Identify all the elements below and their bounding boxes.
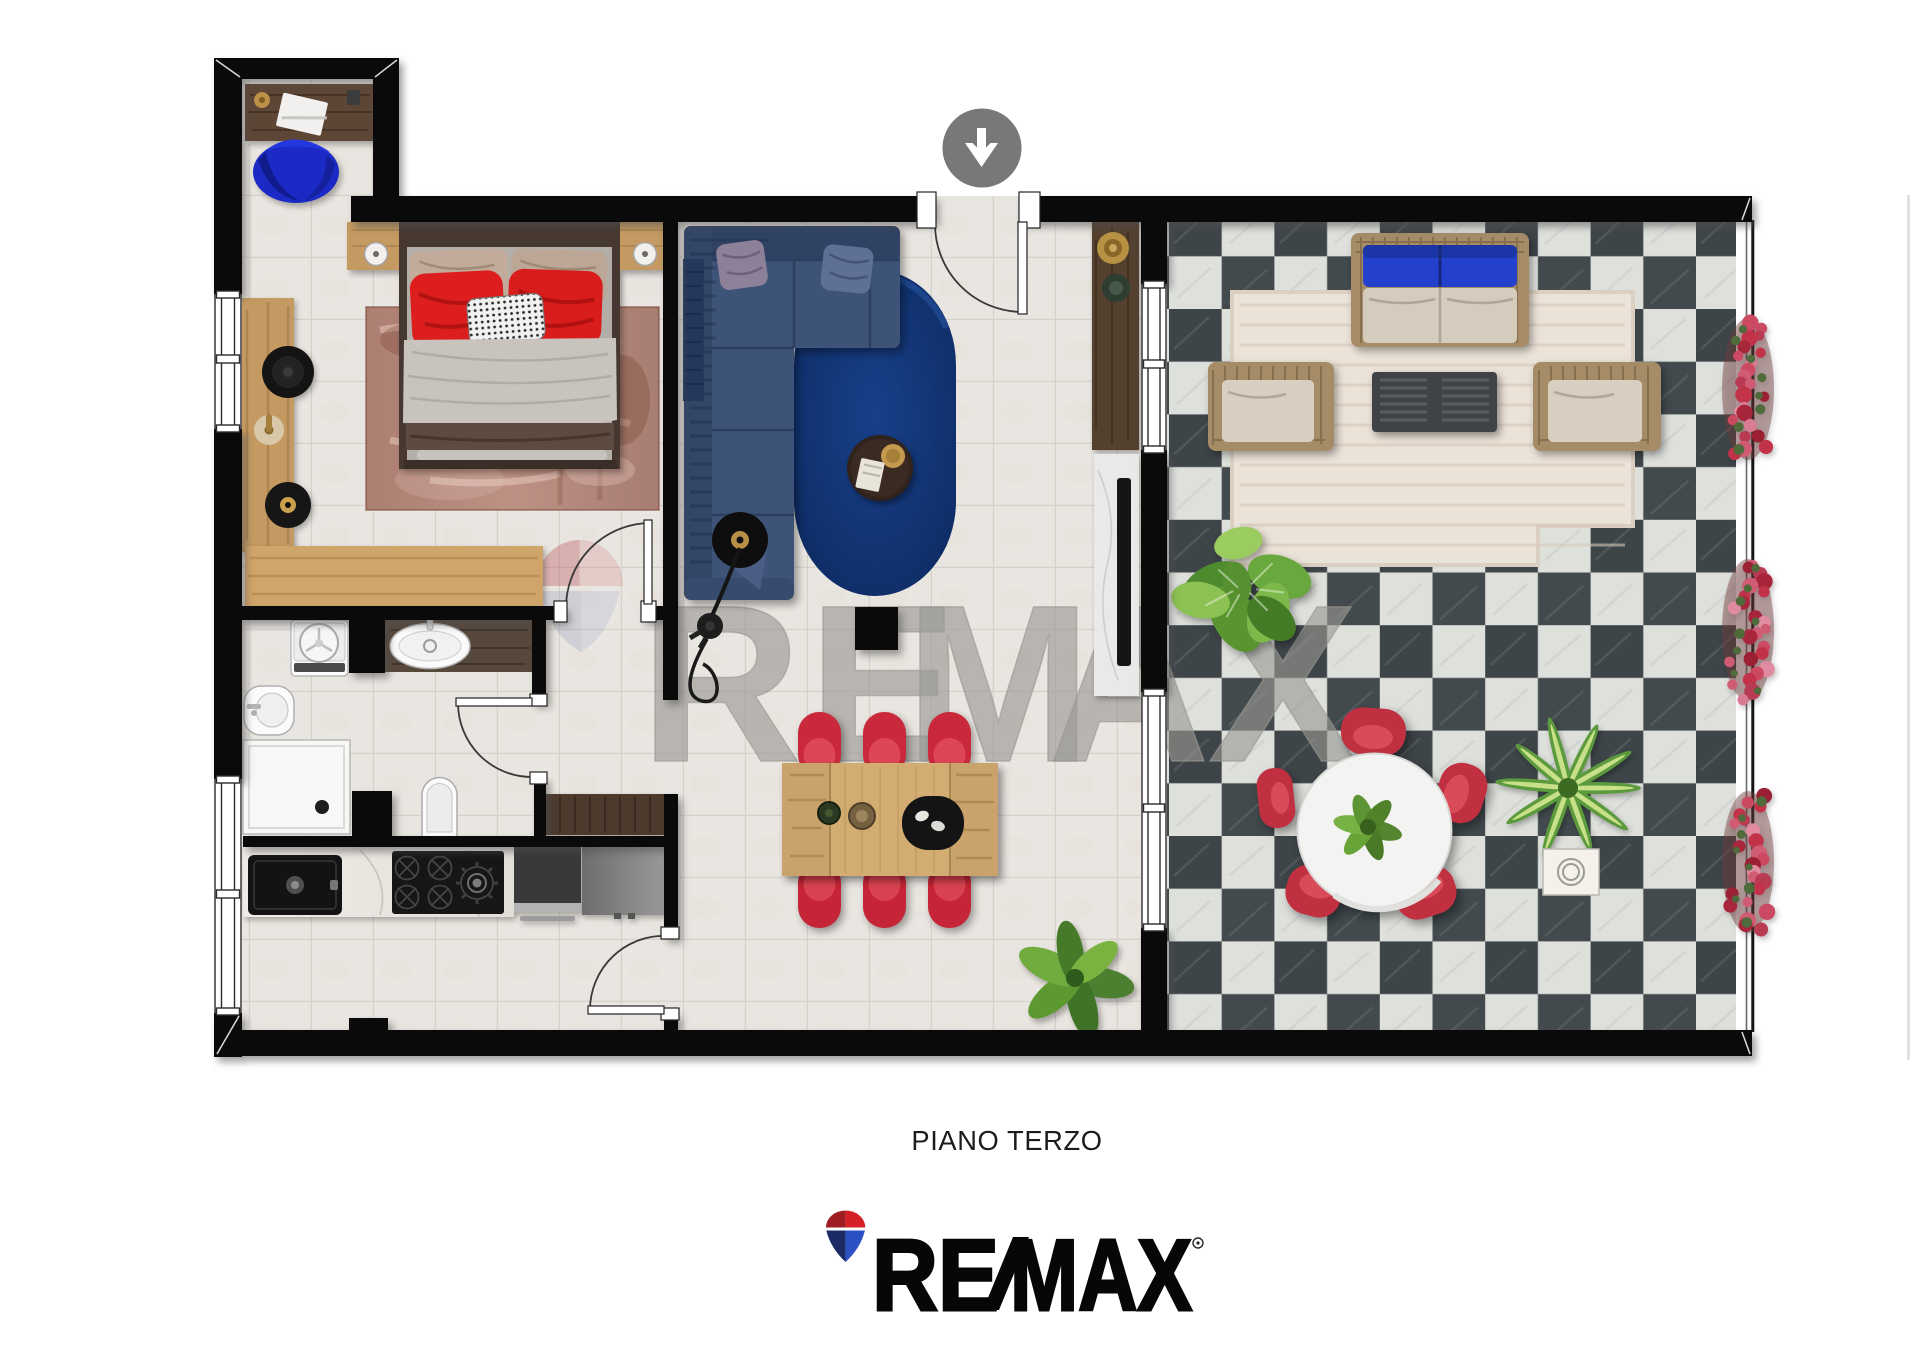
svg-text:PIANO TERZO: PIANO TERZO	[911, 1125, 1102, 1156]
svg-text:RE: RE	[872, 1220, 999, 1332]
svg-text:MAX: MAX	[1010, 1220, 1192, 1332]
